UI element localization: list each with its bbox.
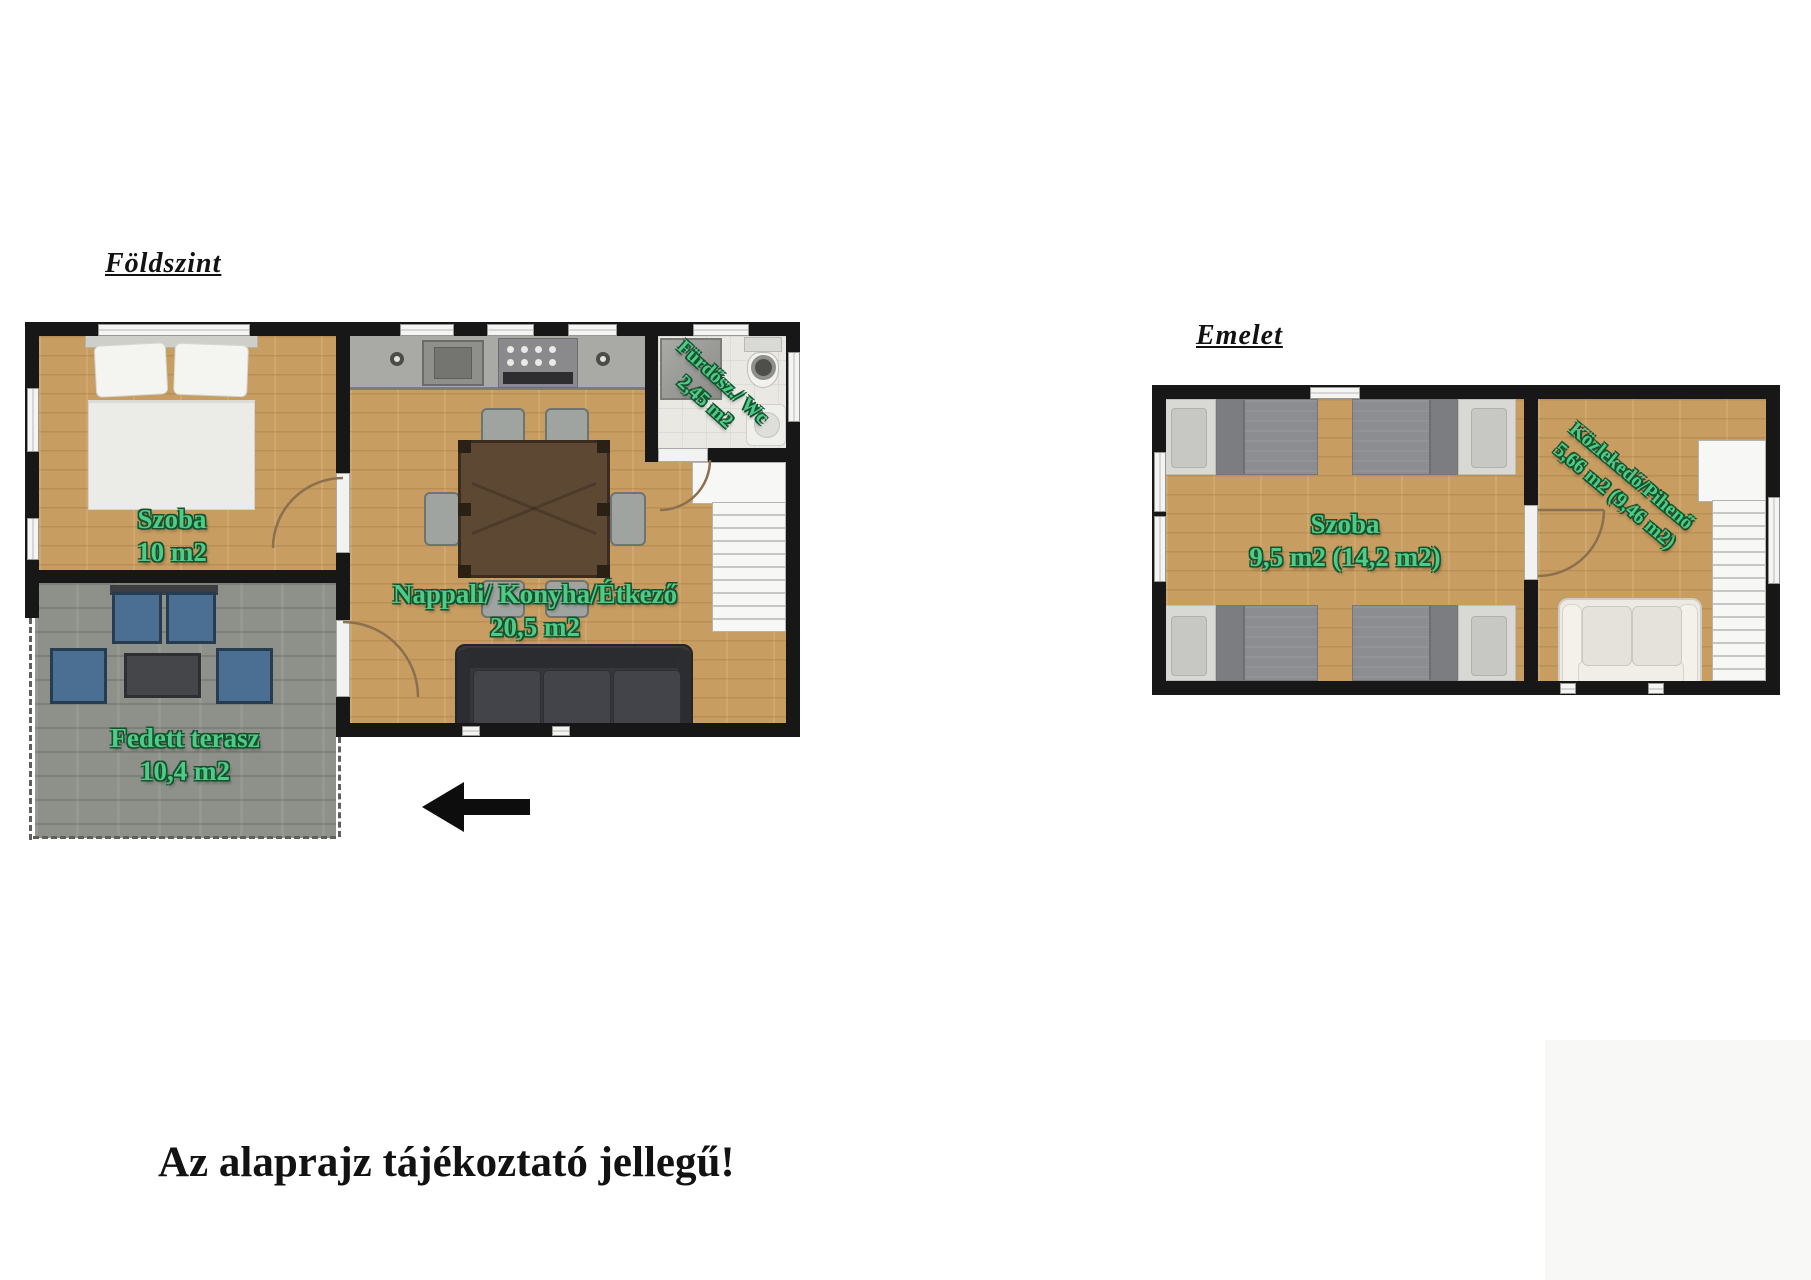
window (568, 324, 617, 336)
staircase-landing (692, 462, 786, 504)
bed-mattress (1216, 605, 1318, 681)
bed-headboard (1160, 399, 1216, 475)
room-area: 9,5 m2 (14,2 m2) (1249, 541, 1440, 574)
window (487, 324, 534, 336)
room-label-szoba: Szoba 10 m2 (137, 503, 207, 569)
disclaimer-text: Az alaprajz tájékoztató jellegű! (158, 1138, 735, 1187)
bed-duvet (88, 400, 255, 510)
sofa (455, 644, 693, 734)
terrace-table (124, 653, 201, 698)
dining-chair (424, 492, 460, 546)
bed-mattress (1352, 605, 1458, 681)
terrace-chair (50, 648, 107, 704)
room-name: Szoba (1249, 508, 1440, 541)
staircase-landing (1698, 440, 1766, 502)
wall-segment (25, 570, 350, 583)
window (693, 324, 749, 336)
wall-post (462, 726, 480, 736)
floorplan-page: Földszint (0, 0, 1811, 1280)
window (1154, 452, 1166, 512)
room-area: 10 m2 (137, 536, 207, 569)
window (1154, 516, 1166, 582)
room-label-terasz: Fedett terasz 10,4 m2 (110, 722, 259, 788)
room-name: Fedett terasz (110, 722, 259, 755)
staircase (712, 502, 786, 632)
window (788, 352, 800, 422)
wall-segment (645, 336, 658, 462)
kitchen-stove (498, 338, 578, 388)
terrace-open-edge (338, 737, 341, 837)
bed-headboard (1160, 605, 1216, 681)
door-opening-szoba (336, 473, 350, 553)
sofa-upper (1558, 598, 1702, 690)
bed-pillow (173, 343, 249, 398)
wall-post (1648, 683, 1664, 694)
bed-pillow (94, 342, 169, 398)
kitchen-sink-basin (434, 347, 472, 379)
terrace-open-edge (29, 618, 32, 840)
ground-floor-title: Földszint (105, 248, 221, 280)
bed-headboard (1458, 605, 1516, 681)
room-area: 10,4 m2 (110, 755, 259, 788)
wall-segment (1152, 681, 1780, 695)
toilet-seat (751, 355, 776, 380)
window (400, 324, 454, 336)
entrance-arrow-icon (422, 782, 464, 832)
window (27, 518, 39, 560)
kitchen-knob (596, 352, 610, 366)
room-label-nappali: Nappali/ Konyha/Étkező 20,5 m2 (393, 578, 677, 644)
wall-segment (1152, 385, 1780, 399)
bed-mattress (1216, 399, 1318, 475)
terrace-open-edge (33, 836, 336, 839)
door-opening-furdo (658, 448, 708, 462)
room-label-upper-szoba: Szoba 9,5 m2 (14,2 m2) (1249, 508, 1440, 574)
door-opening-terasz (336, 620, 350, 697)
entrance-arrow-shaft (460, 799, 530, 815)
room-name: Szoba (137, 503, 207, 536)
kitchen-faucet (390, 352, 404, 366)
staircase (1712, 500, 1766, 681)
bed-headboard (1458, 399, 1516, 475)
dining-chair (610, 492, 646, 546)
window (1310, 387, 1360, 399)
window (27, 388, 39, 452)
door-opening-kozlekedo (1524, 505, 1538, 580)
terrace-chair (166, 592, 216, 644)
wall-post (1560, 683, 1576, 694)
window (98, 324, 250, 336)
terrace-chair (216, 648, 273, 704)
room-area: 20,5 m2 (393, 611, 677, 644)
room-name: Nappali/ Konyha/Étkező (393, 578, 677, 611)
bed-mattress (1352, 399, 1458, 475)
window (1768, 497, 1780, 584)
watermark-region (1545, 1040, 1811, 1280)
wall-post (552, 726, 570, 736)
toilet-tank (744, 337, 782, 352)
dining-table (458, 440, 610, 578)
terrace-chair (112, 592, 162, 644)
upper-floor-title: Emelet (1196, 320, 1283, 352)
